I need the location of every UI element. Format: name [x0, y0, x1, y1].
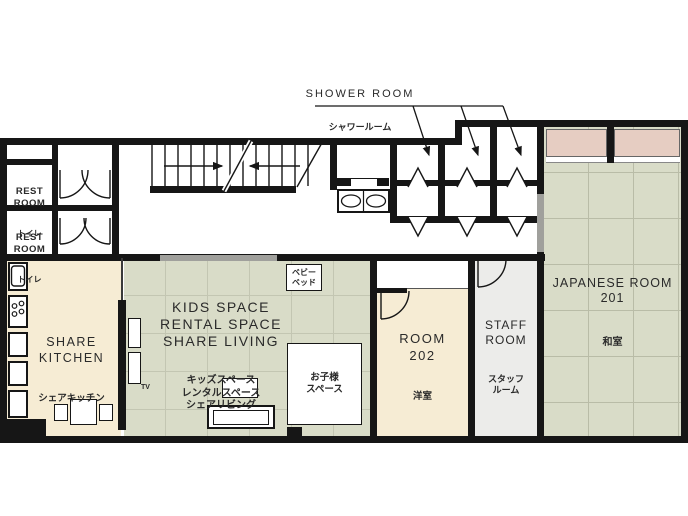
wall-kitchen-living-thin — [121, 258, 123, 302]
shower-door-notches — [408, 168, 527, 236]
rest-room-2-label-en: REST ROOM — [7, 232, 52, 255]
wall-202-left — [370, 254, 377, 436]
wall-step — [455, 120, 462, 145]
wall-notch-kitchen — [0, 419, 46, 443]
staff-room-label-ja: スタッフ ルーム — [475, 374, 537, 396]
rest-room-1-label-en: REST ROOM — [7, 186, 52, 209]
wall-bottom — [0, 436, 688, 443]
staff-room-label-en: STAFF ROOM — [475, 318, 537, 348]
rest-room-2-label-ja: トイレ — [7, 274, 52, 285]
japanese-closet-right — [614, 129, 680, 157]
sliding-door-living — [160, 254, 277, 261]
tv-label: TV — [141, 366, 157, 409]
wall-kitchen-living — [118, 300, 126, 430]
share-living-label-en: KIDS SPACE RENTAL SPACE SHARE LIVING — [131, 299, 311, 350]
wall-stairs-bottom — [150, 186, 296, 193]
share-kitchen-label-ja: シェアキッチン — [24, 390, 119, 404]
wall-202-door-header — [377, 288, 407, 293]
room-202-label-ja: 洋室 — [377, 388, 468, 402]
wall-right — [681, 120, 688, 443]
wall-closet-div — [607, 124, 614, 163]
wall-corridor-left — [112, 138, 119, 254]
tv-label-text: TV — [141, 384, 157, 391]
share-kitchen-label: SHARE KITCHEN シェアキッチン — [24, 316, 119, 422]
wall-restroom-vert — [52, 142, 58, 254]
wall-left — [0, 138, 7, 443]
wall-japanese-left — [537, 120, 544, 443]
toilet-stall-2 — [58, 211, 112, 254]
shower-room-label-ja: シャワールーム — [285, 120, 435, 133]
vanity-double-sink — [337, 178, 389, 212]
room-202-closet — [377, 259, 468, 289]
toilet-stall-1 — [58, 145, 112, 205]
rest-room-2-label: REST ROOM トイレ — [7, 214, 52, 303]
wall-restroom-top — [0, 159, 58, 165]
wall-mid-right — [277, 254, 545, 261]
wall-shower-div-bc — [490, 124, 497, 223]
japanese-room-label-en: JAPANESE ROOM 201 — [544, 276, 681, 306]
wall-shower-bottom — [390, 216, 544, 223]
staff-room-label: STAFF ROOM スタッフ ルーム — [475, 300, 537, 414]
share-living-label-ja: キッズスペース レンタルスペース シェアリビング — [131, 375, 311, 413]
room-202-label-en: ROOM 202 — [377, 331, 468, 364]
wall-202-right — [468, 254, 475, 436]
floor-plan: ベビー ベッド お子様 スペース — [0, 0, 688, 516]
japanese-room-label: JAPANESE ROOM 201 和室 — [544, 258, 681, 366]
share-kitchen-label-en: SHARE KITCHEN — [24, 334, 119, 366]
sliding-door-japanese — [537, 194, 544, 252]
shower-room-label-en: SHOWER ROOM — [285, 88, 435, 100]
wall-shower-mid — [390, 180, 544, 186]
room-202-label: ROOM 202 洋室 — [377, 313, 468, 420]
share-living-label: KIDS SPACE RENTAL SPACE SHARE LIVING キッズ… — [131, 281, 311, 431]
kids-corner-label: お子様 スペース — [306, 372, 343, 396]
shower-room-label: SHOWER ROOM シャワールーム — [285, 70, 435, 151]
japanese-room-label-ja: 和室 — [544, 333, 681, 348]
japanese-closet-left — [546, 129, 607, 157]
storage-box — [7, 145, 52, 159]
wall-landing — [330, 145, 337, 190]
